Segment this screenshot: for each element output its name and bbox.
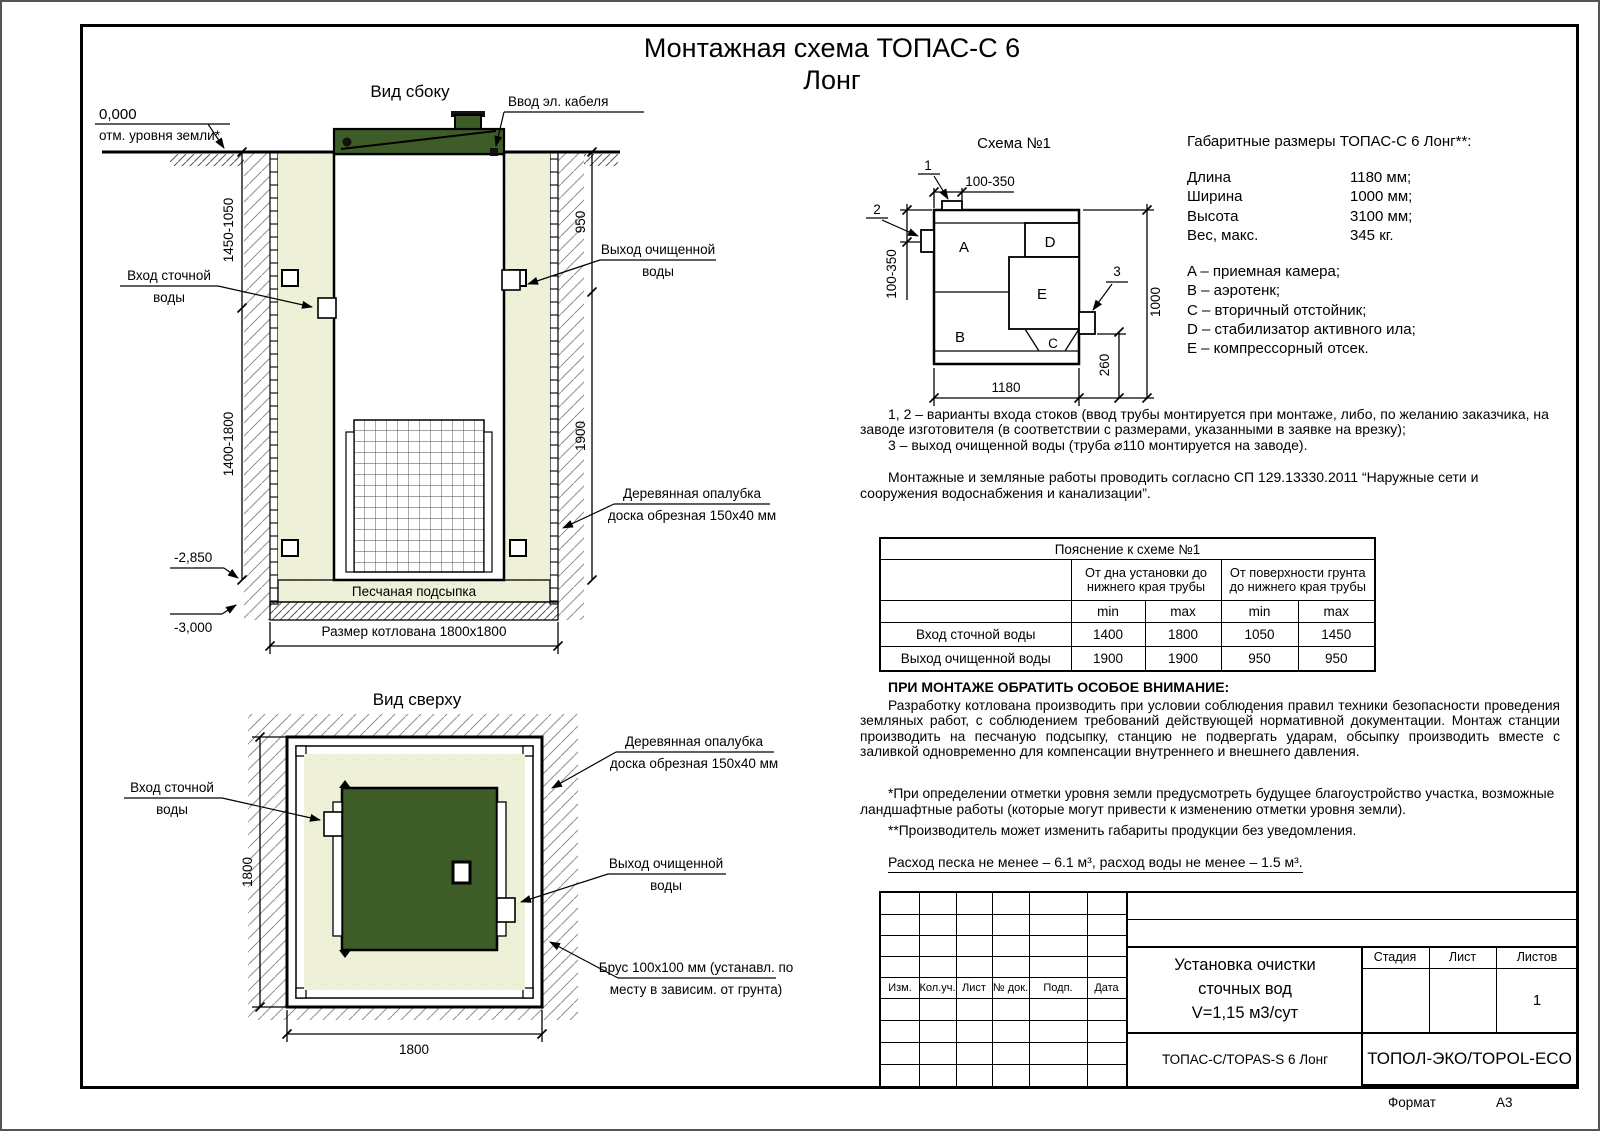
schema-title: Схема №1 (977, 135, 1051, 152)
legend-item: D – стабилизатор активного ила; (1187, 320, 1416, 339)
ground-ticks-left (170, 154, 244, 166)
max-header: max (1145, 601, 1221, 623)
bedding-label: Песчаная подсыпка (352, 584, 477, 599)
table-row: Вход сточной воды 1400 1800 1050 1450 (880, 623, 1375, 647)
station-lower-grid (354, 420, 484, 572)
spec-row: Вес, макс.345 кг. (1187, 226, 1412, 245)
legend-item: A – приемная камера; (1187, 262, 1416, 281)
product-name: ТОПАС-С/TOPAS-S 6 Лонг (1126, 1032, 1364, 1086)
inlet-label-2: воды (153, 290, 185, 305)
cable-label: Ввод эл. кабеля (508, 94, 608, 109)
footnote-2: **Производитель может изменить габариты … (860, 823, 1560, 839)
cable-gland (343, 138, 352, 147)
table-row: Выход очищенной воды 1900 1900 950 950 (880, 647, 1375, 672)
zero-mark: 0,000 (99, 106, 137, 123)
station-rail-left (346, 432, 354, 572)
specs-rows: Длина1180 мм; Ширина1000 мм; Высота3100 … (1187, 168, 1412, 245)
compartment-legend: A – приемная камера; B – аэротенк; C – в… (1187, 262, 1416, 358)
sand-backfill-left (278, 152, 334, 580)
grid-line (881, 956, 1126, 957)
schema-dim-top: 100-350 (965, 174, 1015, 189)
spec-row: Ширина1000 мм; (1187, 187, 1412, 206)
letter-b: B (955, 329, 965, 346)
dim-right-top: 950 (573, 211, 588, 234)
top-dim-width: 1800 (399, 1042, 429, 1057)
station-rail-right (484, 432, 492, 572)
sand-backfill-right (504, 152, 550, 580)
explanation-table: Пояснение к схеме №1 От дна установки до… (879, 537, 1376, 672)
formwork-label-2: доска обрезная 150х40 мм (608, 508, 776, 523)
station-lid (334, 111, 504, 156)
footnote-1: *При определении отметки уровня земли пр… (860, 786, 1560, 818)
legend-item: C – вторичный отстойник; (1187, 301, 1416, 320)
grid-line (881, 914, 1126, 915)
letter-e: E (1037, 286, 1047, 303)
level-3000: -3,000 (174, 620, 212, 635)
letter-d: D (1045, 234, 1056, 251)
pit-size-label: Размер котлована 1800х1800 (322, 624, 507, 639)
outlet-pipe (502, 270, 520, 290)
legend-item: B – аэротенк; (1187, 281, 1416, 300)
note-outlet: 3 – выход очищенной воды (труба ⌀110 мон… (860, 438, 1554, 453)
attention-block: ПРИ МОНТАЖЕ ОБРАТИТЬ ОСОБОЕ ВНИМАНИЕ: Ра… (860, 680, 1560, 760)
cable-entry-point (490, 148, 498, 156)
inlet-pipe (318, 298, 336, 318)
spec-row: Длина1180 мм; (1187, 168, 1412, 187)
top-outlet-label-1: Выход очищенной (609, 856, 723, 871)
callout-3: 3 (1113, 264, 1121, 279)
table-group1: От дна установки до нижнего края трубы (1071, 560, 1221, 601)
top-dim-height: 1800 (240, 857, 255, 887)
schema-dim-bottom: 1180 (991, 380, 1020, 395)
top-view-title: Вид сверху (373, 690, 462, 709)
dim-left-top: 1450-1050 (221, 198, 236, 263)
table-corner (880, 560, 1071, 601)
rev-header-data: Дата (1087, 977, 1126, 998)
schema-inlet-2 (921, 230, 934, 252)
format-value: А3 (1496, 1095, 1513, 1110)
callout-2: 2 (873, 202, 881, 217)
grid-line (881, 1020, 1126, 1021)
outlet-label-1: Выход очищенной (601, 242, 715, 257)
side-view-title: Вид сбоку (370, 82, 450, 101)
schema-dim-left: 100-350 (884, 249, 899, 299)
inlet-label-1: Вход сточной (127, 268, 211, 283)
beam-label-2: месту в зависим. от грунта) (610, 982, 782, 997)
rev-header-koluch: Кол.уч. (919, 977, 956, 998)
callout-1: 1 (924, 158, 932, 173)
top-outlet-label-2: воды (650, 878, 682, 893)
rev-header-list: Лист (956, 977, 992, 998)
spec-row: Высота3100 мм; (1187, 207, 1412, 226)
level-2850: -2,850 (174, 550, 212, 565)
footnotes: *При определении отметки уровня земли пр… (860, 786, 1560, 838)
beam-label-1: Брус 100х100 мм (устанавл. по (599, 960, 794, 975)
earth-left (244, 152, 270, 620)
grid-line (881, 935, 1126, 936)
top-inlet-pipe (324, 812, 342, 836)
zero-note: отм. уровня земли* (99, 128, 221, 143)
rev-header-izm: Изм. (881, 977, 919, 998)
top-view: Вид сверху (124, 690, 793, 1057)
note-sp: Монтажные и земляные работы проводить со… (860, 470, 1554, 501)
min-header: min (1071, 601, 1145, 623)
legend-item: E – компрессорный отсек. (1187, 339, 1416, 358)
doc-title: Установка очистки сточных вод V=1,15 м3/… (1126, 946, 1364, 1032)
top-formwork-label-1: Деревянная опалубка (625, 734, 764, 749)
table-group2: От поверхности грунта до нижнего края тр… (1221, 560, 1375, 601)
side-view: Вид сбоку (95, 82, 776, 654)
letter-c: C (1048, 336, 1058, 351)
sheets-header: Листов (1496, 946, 1578, 968)
station-top (342, 788, 497, 950)
grid-line (1126, 919, 1576, 920)
schema-dim-right: 1000 (1148, 287, 1163, 317)
sheet-header: Лист (1429, 946, 1496, 968)
sheets-value: 1 (1496, 968, 1578, 1032)
drawing-sheet: Монтажная схема ТОПАС-С 6 Лонг (0, 0, 1600, 1131)
formwork-label-1: Деревянная опалубка (623, 486, 762, 501)
grid-line (881, 998, 1126, 999)
format-label: Формат (1388, 1095, 1436, 1110)
dim-left-bottom: 1400-1800 (221, 412, 236, 477)
dim-right-bottom: 1900 (573, 421, 588, 451)
company-name: ТОПОЛ-ЭКО/TOPOL-ECO (1361, 1032, 1578, 1086)
specs-title: Габаритные размеры ТОПАС-С 6 Лонг**: (1187, 133, 1471, 150)
outlet-label-2: воды (642, 264, 674, 279)
top-formwork-label-2: доска обрезная 150х40 мм (610, 756, 778, 771)
pit-bottom (270, 602, 558, 620)
top-outlet-pipe (497, 898, 515, 922)
grid-line (881, 1064, 1126, 1065)
attention-body: Разработку котлована производить при усл… (860, 698, 1560, 760)
notes: 1, 2 – варианты входа стоков (ввод трубы… (860, 407, 1554, 501)
schema-outlet-3 (1079, 312, 1095, 334)
consumption-note: Расход песка не менее – 6.1 м³, расход в… (888, 854, 1303, 873)
letter-a: A (959, 239, 969, 256)
schema-inlet-1 (942, 201, 962, 210)
table-title: Пояснение к схеме №1 (880, 538, 1375, 560)
stage-header: Стадия (1361, 946, 1429, 968)
rev-header-podp: Подп. (1029, 977, 1087, 998)
top-inlet-label-2: воды (156, 802, 188, 817)
schema: Схема №1 A B D E C 1 2 3 (866, 135, 1163, 406)
schema-dim-outlet: 260 (1097, 354, 1112, 377)
rev-header-ndok: № док. (992, 977, 1029, 998)
top-inlet-label-1: Вход сточной (130, 780, 214, 795)
vent-hatch (453, 862, 470, 883)
note-variants: 1, 2 – варианты входа стоков (ввод трубы… (860, 407, 1554, 438)
title-block: Изм. Кол.уч. Лист № док. Подп. Дата Уста… (879, 891, 1579, 1089)
max-header: max (1298, 601, 1375, 623)
attention-heading: ПРИ МОНТАЖЕ ОБРАТИТЬ ОСОБОЕ ВНИМАНИЕ: (860, 680, 1560, 696)
min-header: min (1221, 601, 1298, 623)
grid-line (881, 1042, 1126, 1043)
